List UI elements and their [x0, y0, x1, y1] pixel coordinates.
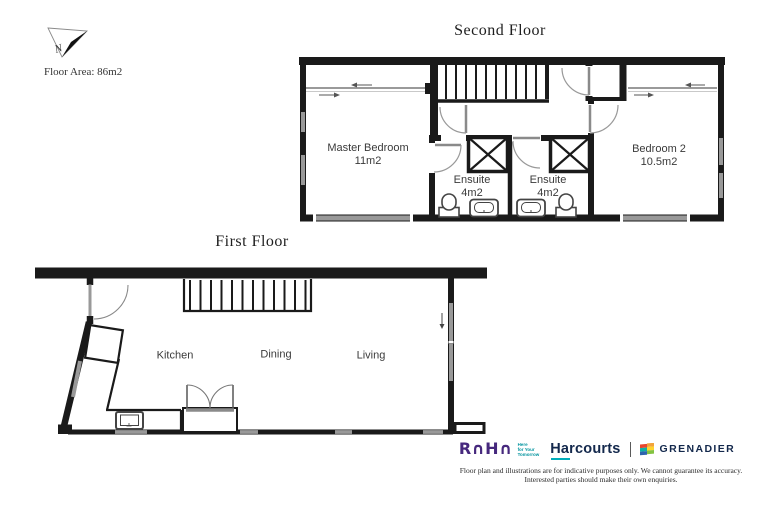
second-floor-title: Second Floor: [454, 22, 546, 40]
shower-box-left: [469, 138, 508, 172]
room-label-dining: Dining: [260, 349, 291, 362]
disclaimer-line-2: Interested parties should make their own…: [448, 476, 754, 485]
floor-area-label: Floor Area: 86m2: [44, 66, 122, 78]
window-direction-arrow: [440, 313, 445, 329]
north-label: N: [52, 42, 64, 56]
room-name: Ensuite: [530, 174, 567, 187]
room-label-kitchen: Kitchen: [157, 350, 194, 363]
room-area: 4m2: [454, 187, 491, 200]
bedroom2-wardrobe-sliding-doors: [628, 83, 717, 98]
raha-tagline-line: Tomorrow: [518, 452, 540, 457]
room-area: 4m2: [530, 187, 567, 200]
harcourts-accent-underline: [551, 458, 570, 460]
north-arrow-icon: N: [48, 28, 87, 57]
grenadier-wordmark: GRENADIER: [660, 443, 736, 455]
footer-branding: R∩H∩ Here for Your Tomorrow Harcourts GR…: [458, 440, 736, 458]
second-floor-plan: [299, 57, 725, 222]
room-area: 11m2: [327, 155, 408, 168]
french-doors-unit: [183, 385, 237, 432]
raha-logo: R∩H∩: [459, 441, 513, 457]
floor-plan-page: N: [0, 0, 768, 512]
harcourts-logo: Harcourts: [550, 440, 620, 458]
first-floor-title: First Floor: [215, 233, 289, 251]
room-label-ensuite-right: Ensuite 4m2: [530, 174, 567, 200]
disclaimer-text: Floor plan and illustrations are for ind…: [448, 467, 754, 484]
room-label-bedroom-2: Bedroom 2 10.5m2: [632, 143, 686, 169]
room-name: Ensuite: [454, 174, 491, 187]
footer-divider: [630, 442, 631, 457]
room-label-master-bedroom: Master Bedroom 11m2: [327, 142, 408, 168]
entry-door: [90, 285, 128, 320]
raha-tagline: Here for Your Tomorrow: [518, 442, 540, 457]
room-label-ensuite-left: Ensuite 4m2: [454, 174, 491, 200]
harcourts-wordmark: Harcourts: [550, 441, 620, 457]
sink-left: [470, 200, 498, 217]
grenadier-flag-icon: [640, 443, 655, 456]
first-floor-staircase: [184, 279, 311, 311]
shower-box-right: [551, 138, 590, 172]
master-wardrobe-sliding-doors: [306, 83, 434, 98]
room-area: 10.5m2: [632, 156, 686, 169]
room-name: Master Bedroom: [327, 142, 408, 155]
sink-right: [517, 200, 545, 217]
kitchen-sink: [116, 412, 143, 429]
room-label-living: Living: [357, 350, 386, 363]
room-name: Bedroom 2: [632, 143, 686, 156]
